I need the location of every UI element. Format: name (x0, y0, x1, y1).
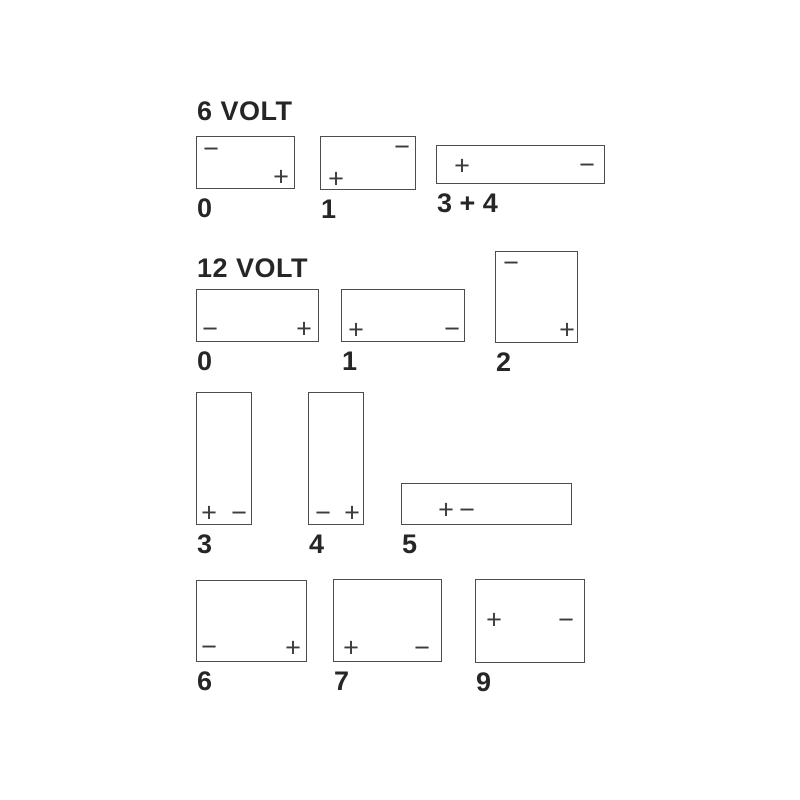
section-heading: 12 VOLT (197, 255, 308, 282)
battery-label: 4 (309, 531, 324, 558)
battery-box: +− (333, 579, 442, 662)
battery-box: −+ (196, 580, 307, 662)
plus-terminal: + (559, 317, 575, 344)
battery-label: 1 (321, 196, 336, 223)
plus-terminal: + (296, 316, 312, 343)
plus-terminal: + (201, 500, 217, 527)
minus-terminal: − (231, 500, 247, 527)
minus-terminal: − (558, 607, 574, 634)
battery-label: 1 (342, 348, 357, 375)
section-heading: 6 VOLT (197, 98, 293, 125)
battery-box: −+ (196, 136, 295, 189)
battery-box: −+ (308, 392, 364, 525)
plus-terminal: + (348, 317, 364, 344)
battery-box: −+ (196, 289, 319, 342)
battery-label: 3 (197, 531, 212, 558)
battery-label: 0 (197, 348, 212, 375)
plus-terminal: + (285, 635, 301, 662)
minus-terminal: − (203, 136, 219, 163)
minus-terminal: − (414, 635, 430, 662)
battery-label: 9 (476, 669, 491, 696)
battery-box: +− (401, 483, 572, 525)
battery-box: −+ (495, 251, 578, 343)
battery-box: +− (475, 579, 585, 663)
plus-terminal: + (343, 635, 359, 662)
minus-terminal: − (315, 500, 331, 527)
plus-terminal: + (454, 153, 470, 180)
plus-terminal: + (486, 607, 502, 634)
battery-box: +− (436, 145, 605, 184)
minus-terminal: − (444, 316, 460, 343)
plus-terminal: + (344, 500, 360, 527)
battery-label: 5 (402, 531, 417, 558)
minus-terminal: − (202, 316, 218, 343)
plus-terminal: + (438, 497, 454, 524)
minus-terminal: − (503, 250, 519, 277)
battery-label: 3 + 4 (437, 190, 498, 217)
minus-terminal: − (201, 634, 217, 661)
minus-terminal: − (459, 497, 475, 524)
battery-label: 2 (496, 349, 511, 376)
minus-terminal: − (394, 134, 410, 161)
battery-box: +− (196, 392, 252, 525)
battery-terminal-layout-diagram: 6 VOLT−+0−+1+−3 + 412 VOLT−+0+−1−+2+−3−+… (0, 0, 800, 800)
plus-terminal: + (273, 164, 289, 191)
battery-box: −+ (320, 136, 416, 190)
battery-label: 0 (197, 195, 212, 222)
battery-box: +− (341, 289, 465, 342)
plus-terminal: + (328, 166, 344, 193)
battery-label: 7 (334, 668, 349, 695)
battery-label: 6 (197, 668, 212, 695)
minus-terminal: − (579, 152, 595, 179)
